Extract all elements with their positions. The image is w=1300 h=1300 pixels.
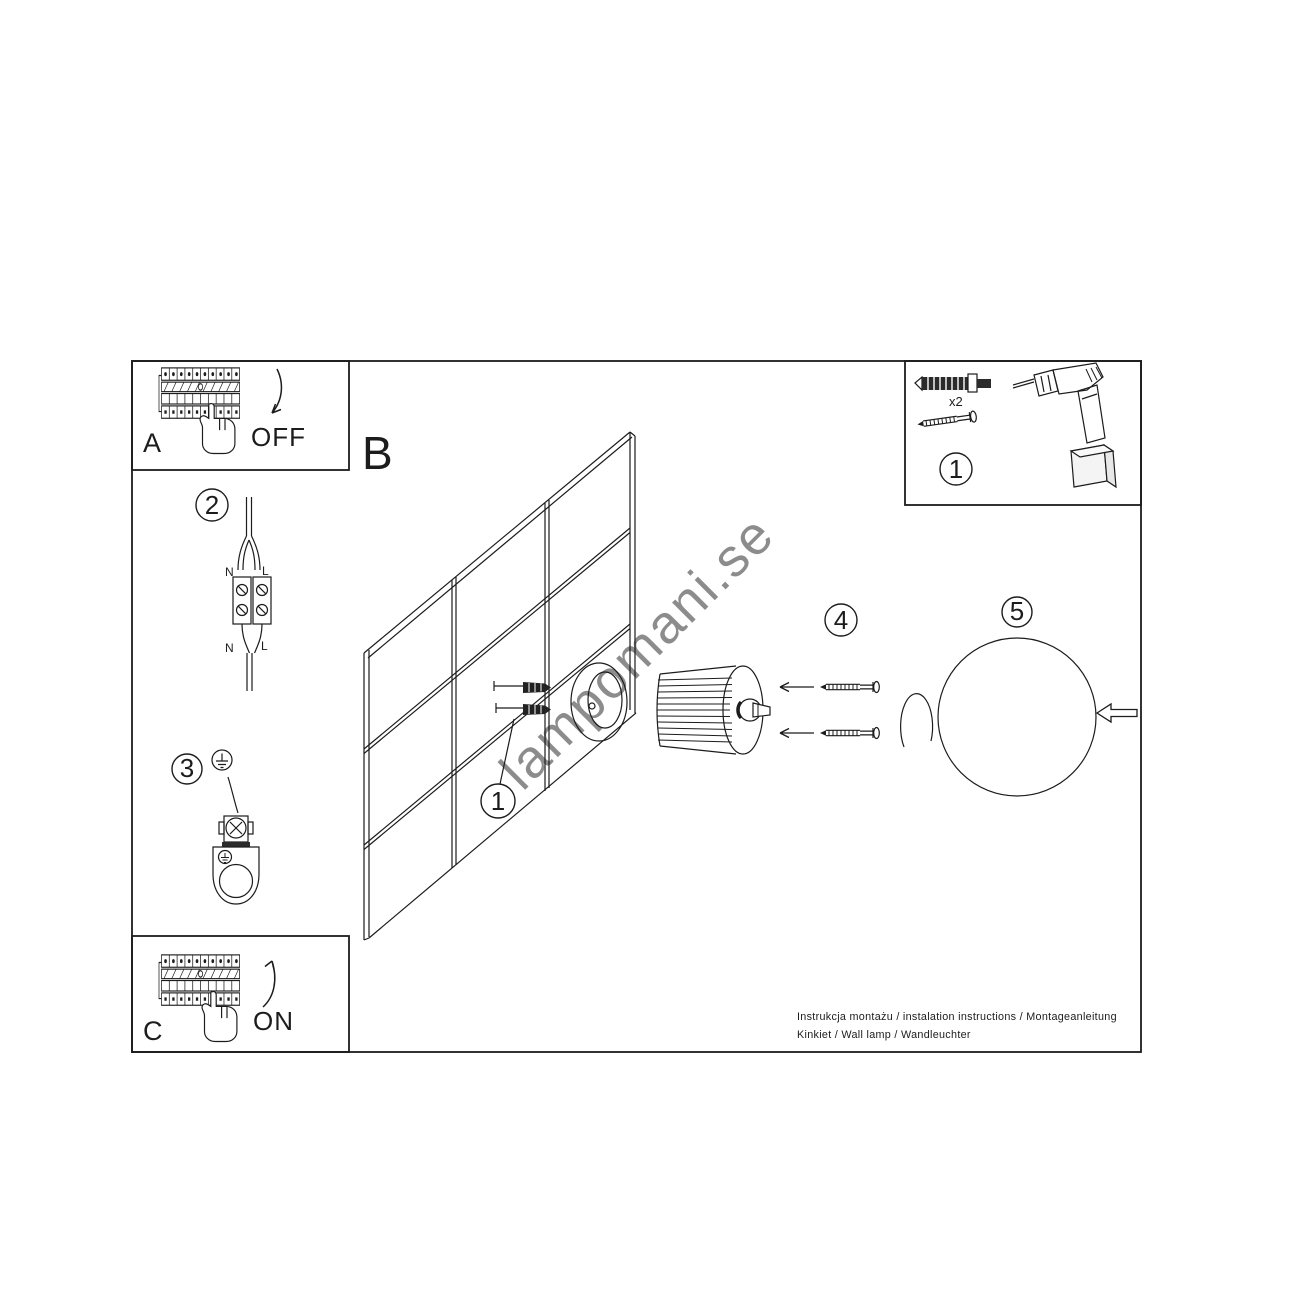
step-5-number: 5 [1010, 596, 1024, 626]
on-label: ON [253, 1006, 294, 1036]
step5-globe: 5 [901, 596, 1137, 796]
cable-bottom [247, 653, 252, 691]
earth-symbol-icon [212, 750, 232, 770]
step-1-number: 1 [491, 786, 505, 816]
off-label: OFF [251, 422, 306, 452]
watermark: lampomani.se [489, 504, 786, 801]
globe-shade [938, 638, 1096, 796]
mounting-bracket [213, 847, 259, 904]
wall-plug-icon [915, 374, 991, 392]
step-4-number: 4 [834, 605, 848, 635]
wire-merge-bottom [242, 624, 262, 653]
kit-box: x2 1 [905, 361, 1141, 505]
screw-icon [820, 682, 879, 693]
step-2-number: 2 [205, 490, 219, 520]
arrow-left-icon [780, 729, 814, 738]
outer-frame [132, 361, 1141, 1052]
arrow-left-icon [780, 683, 814, 692]
terminal-l-bottom: L [261, 639, 268, 653]
panel-a-box [132, 361, 349, 470]
screw-icon [820, 728, 879, 739]
lamp-body [657, 666, 770, 754]
footer: Instrukcja montażu / instalation instruc… [797, 1011, 1117, 1041]
terminal-n-bottom: N [225, 641, 234, 655]
panel-c-box [132, 936, 349, 1052]
section-b-letter: B [362, 427, 393, 479]
breaker-panel-icon [159, 368, 240, 418]
footer-line-1: Instrukcja montażu / instalation instruc… [797, 1011, 1117, 1023]
push-arrow-icon [1097, 704, 1137, 722]
panel-c-letter: C [143, 1016, 163, 1046]
terminal-screws [237, 585, 268, 616]
panel-a-letter: A [143, 428, 161, 458]
footer-line-2: Kinkiet / Wall lamp / Wandleuchter [797, 1029, 971, 1041]
terminal-n-top: N [225, 565, 234, 579]
earth-terminal [219, 816, 253, 847]
wall-anchor-icon [494, 681, 551, 693]
kit-badge-number: 1 [949, 454, 963, 484]
step2-wiring: 2 N L N L [196, 489, 271, 691]
breaker-panel-icon [159, 955, 240, 1005]
globe-neck [901, 694, 933, 747]
earth-wire [228, 777, 238, 813]
cable-top [247, 497, 252, 536]
step3-grounding: 3 [172, 750, 259, 904]
instruction-diagram: A OFF 2 N L N L 3 [0, 0, 1300, 1300]
wire-split-top [238, 536, 260, 570]
panel-a: A OFF [132, 361, 349, 470]
screw-icon [917, 411, 977, 430]
arrow-down-icon [272, 369, 281, 413]
arrow-up-icon [263, 961, 275, 1007]
instruction-sheet: A OFF 2 N L N L 3 [0, 0, 1300, 1300]
step-3-number: 3 [180, 753, 194, 783]
terminal-l-top: L [262, 564, 269, 578]
panel-c: C ON [132, 936, 349, 1052]
drill-icon [1013, 363, 1116, 487]
step4-screws: 4 [780, 604, 879, 739]
plug-quantity-label: x2 [949, 394, 963, 409]
